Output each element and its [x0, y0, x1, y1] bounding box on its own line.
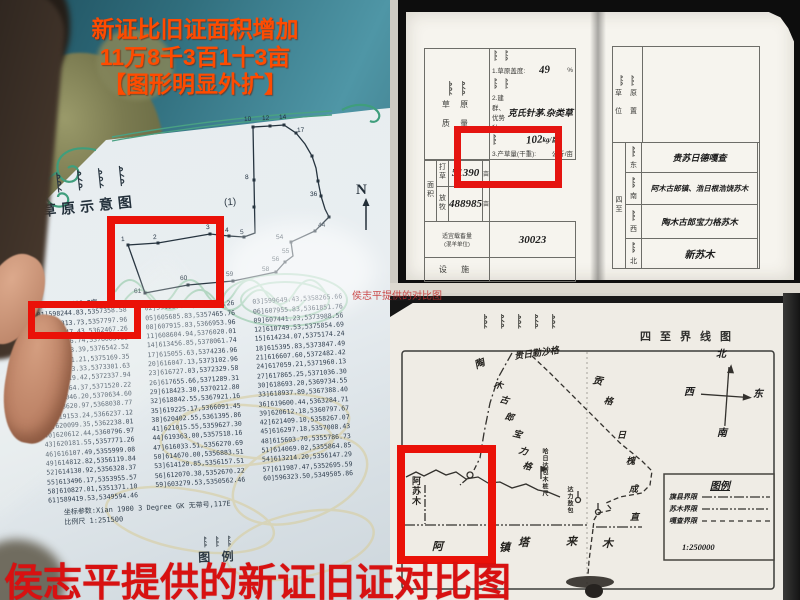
table-row: 草 原 位 置 — [613, 47, 760, 143]
map-label: 格 — [521, 458, 533, 473]
north-value-cell: 新苏木 — [642, 239, 758, 269]
bounds-label-cell: 四 至 — [613, 143, 626, 269]
legend-item-gacha-boundary: 嘎查界限 — [669, 516, 697, 526]
mongolian-glyph-icon — [499, 313, 507, 331]
area-label: 面 积 — [425, 182, 436, 200]
old-certificate-scan-tables: 草 原 质 量 1.草原盖度: 49 % — [390, 0, 800, 293]
mongolian-glyph-icon — [504, 50, 510, 62]
scan-border — [390, 296, 800, 303]
scan-gap — [390, 283, 800, 293]
table-row: 北 新苏木 — [613, 239, 758, 269]
capacity-label: 适宜载畜量 — [425, 231, 489, 240]
mongolian-glyph-icon — [631, 242, 637, 254]
provider-watermark: 侯志平提供的对比图 — [352, 287, 442, 302]
table-row: 适宜载畜量 (混羊单位) 30023 — [425, 222, 576, 258]
south-boundary: 阿木古郎镇、浩日根浩饶苏木 — [651, 184, 749, 193]
annotation-line-2: 11万8千3百1十3亩 — [30, 44, 360, 72]
map-label: 8 — [245, 174, 249, 181]
bounds-label: 四 至 — [614, 197, 625, 215]
table-row: 四 至 东 贵苏日德嘎查 — [613, 143, 758, 173]
boundary-map-title: 四至界线图 — [640, 328, 740, 344]
mongolian-glyph-icon — [214, 536, 220, 548]
highlight-box-area-values — [454, 126, 562, 188]
map-label: 哈日达包木桩尺 — [540, 448, 549, 497]
mongolian-script-icon — [613, 74, 642, 88]
mongolian-script-icon — [482, 313, 558, 331]
map-label: 郎 — [503, 409, 515, 424]
mongolian-glyph-icon — [116, 164, 129, 189]
comparison-collage: 草原示意图 (1) N 12345810121417364454555658 — [0, 0, 800, 600]
dir-east-cell: 东 — [626, 143, 642, 173]
dir-north-cell: 北 — [626, 239, 642, 269]
capacity-label-cell: 适宜载畜量 (混羊单位) — [425, 222, 490, 258]
coordinate-column-3: 03]599649.43,5358265.6606]607955.83,5361… — [252, 292, 366, 493]
location-label-cell: 草 原 位 置 — [613, 47, 643, 143]
map-label: 12 — [262, 115, 270, 122]
mongolian-glyph-icon — [631, 177, 637, 189]
highlight-box-polygon — [107, 216, 224, 308]
map-label: 贵日勒沙格 — [513, 343, 559, 362]
facility-label: 设 施 — [425, 264, 489, 275]
mongolian-glyph-icon — [493, 78, 499, 90]
table-row: 四 至 东 贵苏日德嘎查 — [613, 143, 760, 269]
mongolian-glyph-icon — [516, 313, 524, 331]
map-label: 5 — [240, 229, 244, 236]
legend-item-sumu-boundary: 苏木界限 — [669, 504, 697, 514]
book-gutter — [590, 12, 606, 280]
map-label: 木 — [602, 535, 613, 551]
east-value-cell: 贵苏日德嘎查 — [642, 143, 758, 173]
dir-east: 东 — [626, 160, 641, 170]
compass-east-label: 东 — [753, 385, 763, 400]
south-value-cell: 阿木古郎镇、浩日根浩饶苏木 — [642, 173, 758, 205]
capacity-label2: (混羊单位) — [425, 240, 489, 248]
legend-item-banner-boundary: 旗县界限 — [669, 492, 697, 502]
compass-south-label: 南 — [717, 424, 727, 439]
map-label: 来 — [566, 533, 577, 549]
mow-label: 打 草 — [437, 164, 448, 182]
map-label: 木 — [492, 377, 504, 392]
east-boundary: 贵苏日德嘎查 — [672, 153, 726, 163]
highlight-box-area — [28, 301, 141, 339]
map-label: 宝 — [511, 426, 523, 441]
capacity-value-cell: 30023 — [490, 222, 576, 258]
dir-south: 南 — [626, 191, 641, 201]
table-row: 设 施 — [425, 258, 576, 282]
mongolian-glyph-icon — [53, 171, 66, 196]
map-label: 力 — [517, 443, 529, 458]
bounds-section: 四 至 东 贵苏日德嘎查 — [613, 143, 760, 269]
location-content-cell — [643, 47, 760, 143]
highlight-box-old-boundary — [397, 445, 496, 564]
graze-value-cell: 488985 — [449, 186, 483, 221]
annotation-line-3: 【图形明显外扩】 — [30, 71, 360, 99]
map-label: 10 — [244, 116, 252, 123]
north-label: N — [356, 182, 367, 199]
mongolian-glyph-icon — [619, 75, 625, 87]
mongolian-glyph-icon — [631, 210, 637, 222]
facility-value-cell — [490, 258, 576, 282]
species-value: 克氏针茅.杂类草 — [508, 106, 573, 119]
mongolian-glyph-icon — [74, 169, 87, 194]
dir-west-cell: 西 — [626, 205, 642, 239]
map-label: 直 — [630, 510, 639, 523]
mongolian-glyph-icon — [447, 80, 455, 98]
graze-unit-cell: 亩 — [483, 186, 490, 221]
mongolian-glyph-icon — [630, 75, 636, 87]
map-label: 14 — [279, 114, 287, 121]
scan-margin — [390, 0, 398, 293]
dir-west: 西 — [626, 224, 641, 234]
annotation-line-1: 新证比旧证面积增加 — [30, 16, 360, 44]
sheet-number: (1) — [224, 197, 237, 209]
mongolian-glyph-icon — [95, 166, 108, 191]
west-boundary: 陶木古郎宝力格苏木 — [661, 217, 738, 227]
map-label: 陶 — [471, 354, 486, 372]
mongolian-glyph-icon — [493, 50, 499, 62]
west-value-cell: 陶木古郎宝力格苏木 — [642, 205, 758, 239]
area-label-cell: 面 积 — [425, 160, 437, 221]
mongolian-glyph-icon — [202, 536, 208, 548]
mongolian-glyph-icon — [533, 313, 541, 331]
scan-border — [783, 293, 800, 600]
coverage-value: 49 — [539, 64, 551, 77]
map-label: 格 — [603, 393, 614, 407]
mongolian-glyph-icon — [482, 313, 490, 331]
location-label-2: 位 置 — [613, 106, 642, 116]
map-label: 36 — [310, 191, 318, 198]
dir-south-cell: 南 — [626, 173, 642, 205]
facility-label-cell: 设 施 — [425, 258, 490, 282]
quality-label-1: 草 原 — [425, 99, 489, 110]
location-label-1: 草 原 — [613, 88, 642, 98]
sun-glare — [225, 222, 375, 318]
compass-north-label: 北 — [716, 345, 726, 360]
coverage-unit: % — [567, 67, 573, 74]
dir-north: 北 — [626, 256, 641, 266]
graze-area-value: 488985 — [449, 198, 482, 210]
table-row: 南 阿木古郎镇、浩日根浩饶苏木 — [613, 173, 758, 205]
legend-scale: 1:250000 — [682, 542, 715, 552]
mongolian-script-icon — [425, 79, 489, 99]
coverage-label: 1.草原盖度: — [492, 65, 525, 75]
mongolian-glyph-icon — [460, 80, 468, 98]
mongolian-glyph-icon — [226, 535, 232, 547]
north-boundary: 新苏木 — [685, 250, 715, 261]
map-label: 贡 — [592, 371, 604, 388]
map-label: 塔 — [518, 534, 529, 550]
table-row: 西 陶木古郎宝力格苏木 — [613, 205, 758, 239]
bottom-caption: 侯志平提供的新证旧证对比图 — [4, 552, 511, 600]
mongolian-script-icon — [490, 49, 575, 63]
mongolian-glyph-icon — [550, 313, 558, 331]
compass-west-label: 西 — [684, 383, 694, 398]
bounds-subtable: 四 至 东 贵苏日德嘎查 — [612, 142, 758, 269]
map-label: 4 — [225, 227, 229, 234]
grassland-location-table: 草 原 位 置 四 至 东 — [612, 46, 760, 269]
mongolian-script-icon — [490, 77, 575, 91]
map-label: 达力敖包 — [565, 486, 574, 514]
page-corner — [390, 301, 416, 317]
legend-title: 图例 — [690, 477, 750, 492]
mow-label-cell: 打 草 — [437, 160, 449, 186]
mongolian-glyph-icon — [631, 146, 637, 158]
map-label: 日 — [617, 428, 626, 441]
map-label: 成 — [629, 482, 638, 495]
map-label: 17 — [297, 127, 305, 134]
map-label: 槐 — [626, 454, 635, 467]
top-annotation: 新证比旧证面积增加 11万8千3百1十3亩 【图形明显外扩】 — [30, 16, 360, 99]
capacity-value: 30023 — [519, 234, 547, 246]
graze-label: 放 牧 — [437, 195, 448, 213]
map-label: 古 — [498, 392, 510, 407]
graze-label-cell: 放 牧 — [437, 186, 449, 221]
mongolian-glyph-icon — [504, 78, 510, 90]
